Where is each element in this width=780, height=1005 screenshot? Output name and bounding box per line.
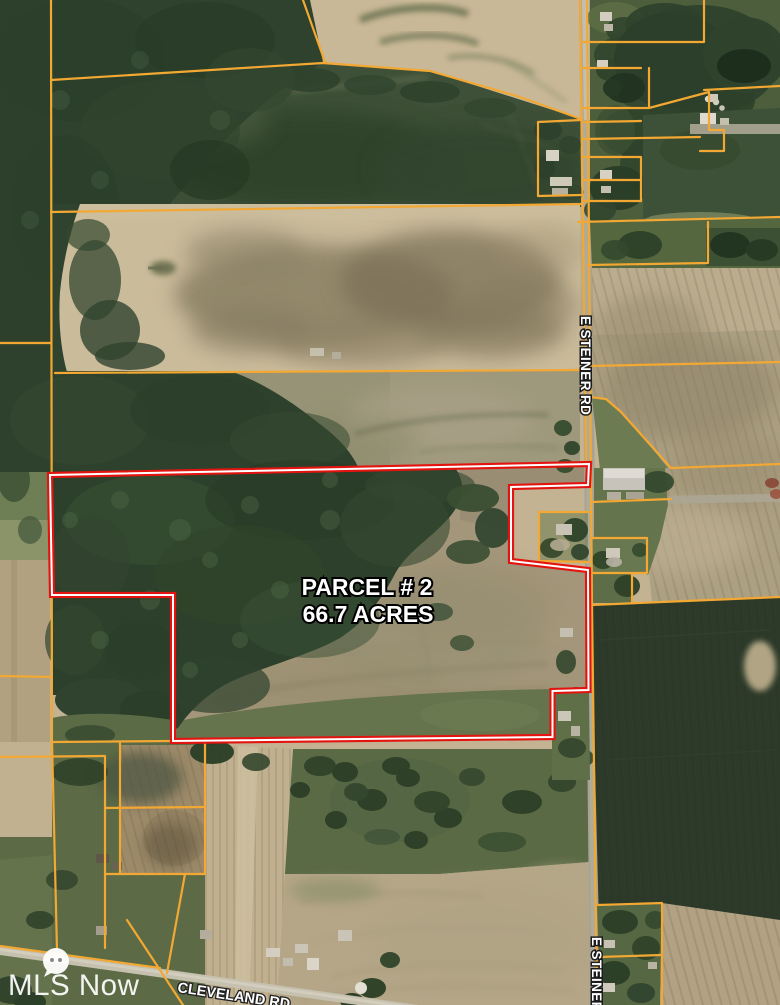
svg-text:66.7 ACRES: 66.7 ACRES (303, 601, 434, 627)
svg-text:MLS Now: MLS Now (8, 969, 140, 1002)
svg-text:PARCEL # 2: PARCEL # 2 (302, 574, 433, 600)
svg-text:E STEINER RD: E STEINER RD (578, 316, 593, 415)
svg-text:E STEINER RD: E STEINER RD (589, 937, 604, 1005)
